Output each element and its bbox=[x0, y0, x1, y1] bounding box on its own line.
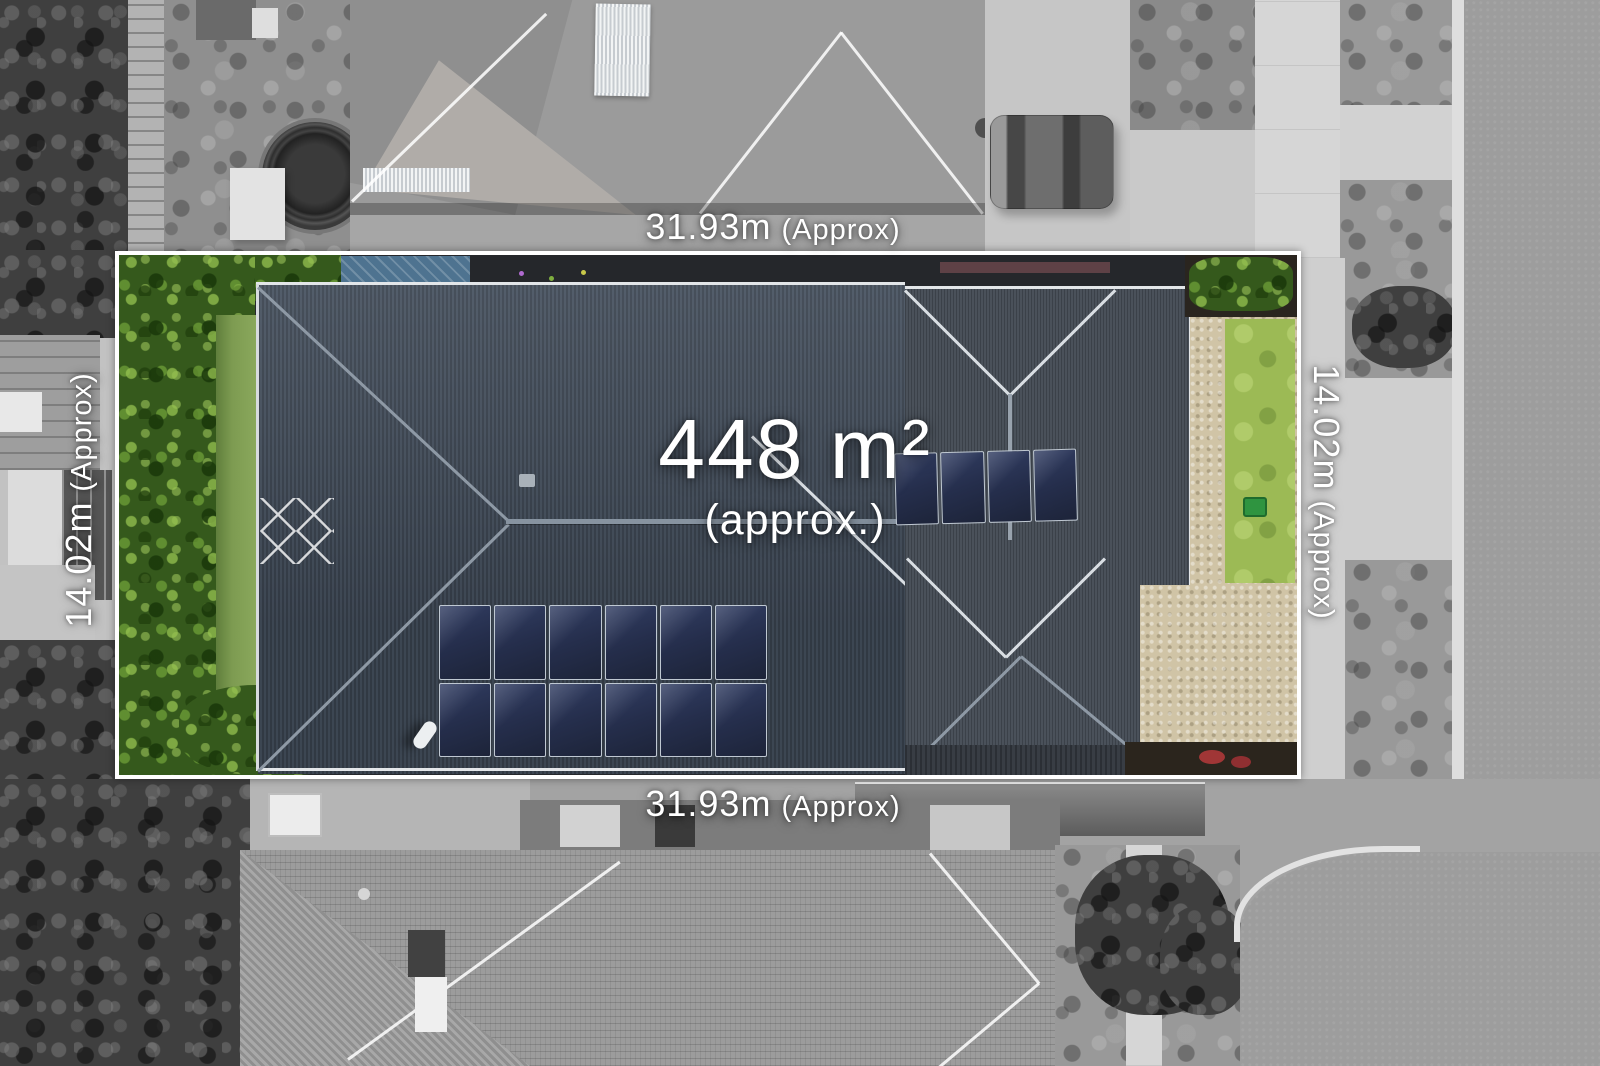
solar-panel bbox=[439, 605, 491, 680]
gutter-line bbox=[256, 282, 905, 285]
red-flowers bbox=[1199, 750, 1225, 764]
garage-roof-edge bbox=[905, 745, 1137, 775]
footpath-top bbox=[1255, 0, 1340, 258]
land-area-label: 448 m² (approx.) bbox=[658, 410, 931, 545]
solar-panel bbox=[605, 605, 657, 680]
side-value: 14.02m bbox=[1305, 364, 1347, 490]
frontage-label-top: 31.93m (Approx) bbox=[645, 206, 900, 248]
neighbor-garden bbox=[1130, 0, 1255, 130]
side-label-right: 14.02m (Approx) bbox=[1305, 364, 1347, 619]
flower bbox=[549, 276, 554, 281]
solar-panel bbox=[549, 683, 601, 758]
frontage-value: 31.93m bbox=[645, 206, 771, 248]
solar-hot-water-panel bbox=[594, 4, 651, 97]
land-area-value: 448 m² bbox=[658, 410, 931, 490]
solar-panel bbox=[940, 451, 985, 524]
solar-panel bbox=[605, 683, 657, 758]
land-area-qualifier: (approx.) bbox=[658, 496, 931, 545]
bottom-house-window bbox=[930, 805, 1010, 850]
solar-panel bbox=[715, 683, 767, 758]
solar-panel bbox=[987, 450, 1032, 523]
front-lawn bbox=[1225, 319, 1295, 583]
solar-panel bbox=[549, 605, 601, 680]
neighbor-shed-roof bbox=[252, 8, 278, 38]
trees-top-left bbox=[0, 0, 130, 258]
verge-grass bbox=[1340, 180, 1452, 258]
solar-panel bbox=[494, 683, 546, 758]
tree-overhang bbox=[0, 250, 118, 338]
driveway-concrete bbox=[1140, 585, 1297, 745]
tv-antenna bbox=[260, 498, 334, 564]
red-flowers bbox=[1231, 756, 1251, 768]
roof-vent bbox=[519, 474, 535, 487]
solar-panel bbox=[715, 605, 767, 680]
gutter-line bbox=[256, 768, 906, 771]
side-value: 14.02m bbox=[58, 502, 100, 628]
frontage-label-bottom: 31.93m (Approx) bbox=[645, 783, 900, 825]
solar-panel bbox=[1033, 449, 1078, 522]
frontage-value: 31.93m bbox=[645, 783, 771, 825]
left-neighbor-roof bbox=[0, 392, 42, 432]
solar-panel bbox=[494, 605, 546, 680]
neighbor-fence bbox=[128, 0, 166, 258]
neighbor-outbuilding bbox=[230, 168, 285, 240]
gutter-line bbox=[256, 284, 259, 770]
chimney-shadow bbox=[408, 930, 445, 977]
utility-box bbox=[1243, 497, 1267, 517]
frontage-qualifier: (Approx) bbox=[781, 214, 900, 247]
frontage-qualifier: (Approx) bbox=[781, 791, 900, 824]
trees-left bbox=[0, 640, 118, 785]
solar-panel bbox=[660, 683, 712, 758]
solar-panel bbox=[439, 683, 491, 758]
parked-car bbox=[990, 115, 1114, 209]
side-qualifier: (Approx) bbox=[66, 372, 99, 491]
flower bbox=[519, 271, 524, 276]
bottom-house-window bbox=[560, 805, 620, 847]
gutter-line bbox=[905, 286, 1193, 289]
solar-array-rear bbox=[437, 603, 769, 759]
street-tree bbox=[1352, 286, 1456, 368]
driveway-crossing bbox=[1340, 105, 1452, 180]
roof-vent bbox=[358, 888, 370, 900]
side-qualifier: (Approx) bbox=[1306, 500, 1339, 619]
neighbor-concrete bbox=[1130, 130, 1255, 251]
aerial-photo: 31.93m (Approx) 31.93m (Approx) 14.02m (… bbox=[0, 0, 1600, 1066]
solar-panel bbox=[660, 605, 712, 680]
garden-bed-strip bbox=[940, 262, 1110, 273]
chimney bbox=[415, 977, 447, 1032]
verge-grass bbox=[1340, 0, 1452, 105]
flower bbox=[581, 270, 586, 275]
trees-bottom-left bbox=[0, 779, 250, 1066]
ac-unit bbox=[268, 793, 322, 837]
shrubs bbox=[1189, 257, 1293, 311]
side-label-left: 14.02m (Approx) bbox=[58, 372, 100, 627]
neighbor-shed bbox=[196, 0, 256, 40]
